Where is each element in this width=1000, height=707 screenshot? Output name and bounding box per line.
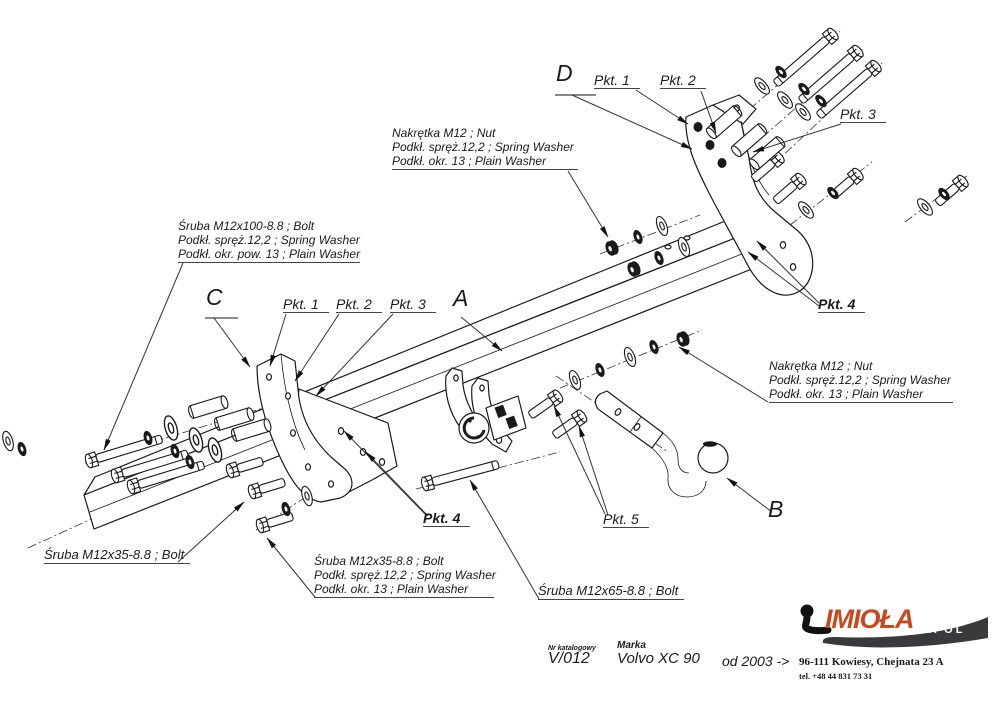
technical-drawing-page: D Pkt. 1 Pkt. 2 Pkt. 3 Nakrętka M12 ; Nu… xyxy=(0,0,1000,707)
callout-bolt-m12x65: Śruba M12x65-8.8 ; Bolt xyxy=(538,584,684,600)
nut-set-bottom xyxy=(567,330,691,391)
point-label-pkt3-top: Pkt. 3 xyxy=(840,107,886,123)
socket-plate xyxy=(459,396,526,443)
year-range: od 2003 -> xyxy=(722,654,789,668)
company-phone: tel. +48 44 831 73 31 xyxy=(799,669,872,683)
point-label-pkt4-right: Pkt. 4 xyxy=(818,297,865,313)
towball-logo-icon xyxy=(801,605,829,631)
tow-ball xyxy=(595,391,728,497)
company-logo: IMIOŁA HAKPOL xyxy=(795,597,995,649)
callout-nut-right: Nakrętka M12 ; Nut Podkł. spręż.12,2 ; S… xyxy=(769,359,953,403)
point-label-pkt3-mid: Pkt. 3 xyxy=(390,297,436,313)
callout-nut-top: Nakrętka M12 ; Nut Podkł. spręż.12,2 ; S… xyxy=(392,126,578,170)
callout-bolt-m12x35-left: Śruba M12x35-8.8 ; Bolt xyxy=(44,548,190,564)
callout-bolt-m12x35-block: Śruba M12x35-8.8 ; Bolt Podkł. spręż.12,… xyxy=(314,554,494,598)
point-label-pkt5: Pkt. 5 xyxy=(603,512,649,528)
part-label-b: B xyxy=(768,502,783,516)
point-label-pkt2-mid: Pkt. 2 xyxy=(336,297,382,313)
point-label-pkt1-top: Pkt. 1 xyxy=(594,73,640,89)
logo-sub-text: HAKPOL xyxy=(901,624,965,636)
part-label-a: A xyxy=(453,291,468,305)
company-address: 96-111 Kowiesy, Chejnata 23 A xyxy=(799,655,944,669)
point-label-pkt2-top: Pkt. 2 xyxy=(660,73,706,89)
callout-bolt-m12x100: Śruba M12x100-8.8 ; Bolt Podkł. spręż.12… xyxy=(178,219,360,263)
part-label-c: C xyxy=(206,290,223,304)
catalog-number-value: V/012 xyxy=(548,652,590,666)
part-label-d: D xyxy=(556,66,573,80)
point-label-pkt1-mid: Pkt. 1 xyxy=(283,297,329,313)
point-label-pkt4-bottom: Pkt. 4 xyxy=(423,511,470,527)
brand-value: Volvo XC 90 xyxy=(617,652,700,666)
